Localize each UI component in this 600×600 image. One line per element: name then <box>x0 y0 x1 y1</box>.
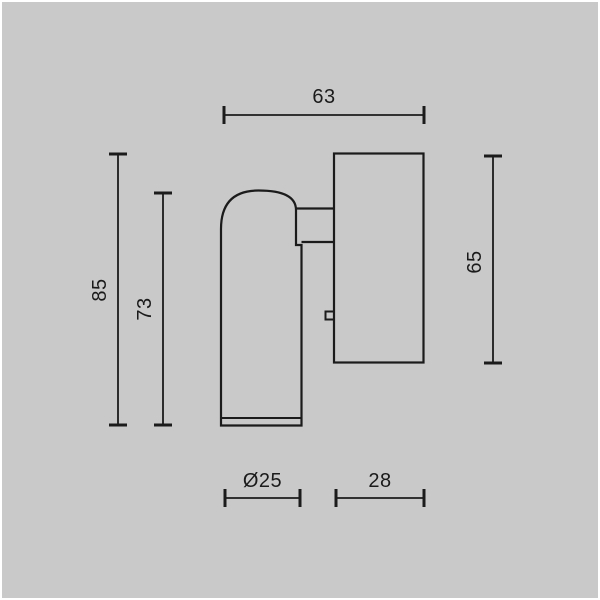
dimension-fixture-height: 73 <box>134 193 172 425</box>
dimension-label-fixture-height: 73 <box>134 297 156 320</box>
dimension-spot-diameter: Ø25 <box>225 470 300 507</box>
lamp-profile <box>221 154 424 426</box>
lamp-head-body-outline <box>221 191 302 426</box>
technical-drawing: 63 85 73 65 Ø25 <box>0 0 600 600</box>
dimension-label-spot-diameter: Ø25 <box>243 470 282 492</box>
dimension-base-width: 28 <box>336 470 424 507</box>
dimension-total-height: 85 <box>89 154 127 425</box>
dimension-label-base-width: 28 <box>368 470 391 492</box>
dimension-label-total-width: 63 <box>312 86 335 108</box>
drawing-canvas: 63 85 73 65 Ø25 <box>0 0 600 600</box>
wall-mount-base <box>334 154 424 363</box>
dimension-base-height: 65 <box>464 156 502 363</box>
dimension-label-total-height: 85 <box>89 278 111 301</box>
dimension-total-width: 63 <box>224 86 424 124</box>
dimension-label-base-height: 65 <box>464 250 486 273</box>
adjustment-knob <box>326 312 335 320</box>
